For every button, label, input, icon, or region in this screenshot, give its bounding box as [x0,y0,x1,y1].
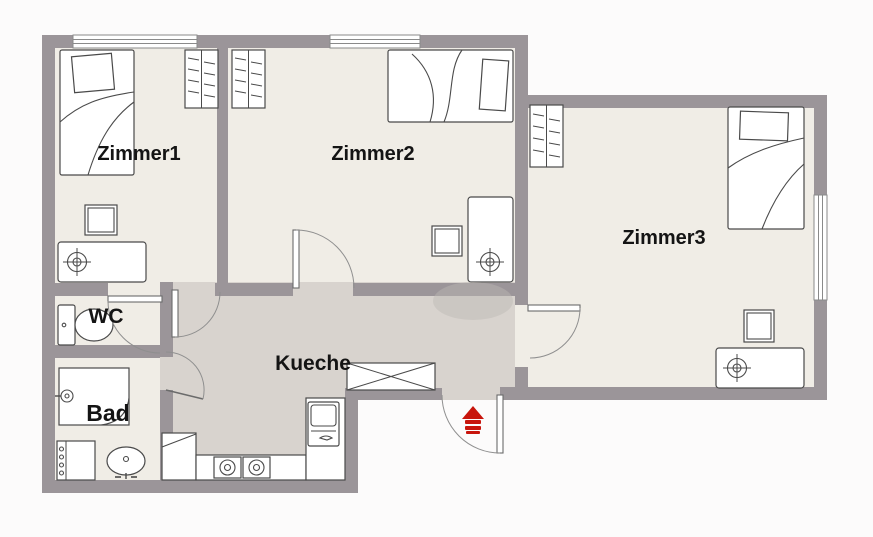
room-label-zimmer2: Zimmer2 [331,143,414,165]
room-label-kueche: Kueche [275,352,351,375]
wall-zimmer3-east-upper [814,95,827,195]
bad-washing-machine [57,441,95,480]
wall-wc-bad-east-upper [160,282,173,357]
zimmer3-wardrobe [530,105,563,167]
wall-west [42,35,55,493]
room-label-zimmer1: Zimmer1 [97,143,180,165]
window-zimmer2 [330,35,420,48]
wall-zimmer2-south-a [215,283,293,296]
zimmer3-bed [728,107,804,229]
wall-south-west-block [42,480,358,493]
zimmer1-wardrobe [185,50,218,108]
zimmer3-stool [744,310,774,342]
window-zimmer1 [73,35,197,48]
zimmer2-desk [468,197,513,282]
wall-zimmer1-south-a [42,283,108,296]
zimmer1-nightstand [85,205,117,235]
zimmer2-bed [388,50,513,122]
wall-zimmer2-east-upper [515,35,528,305]
zimmer3-desk [716,348,804,388]
kueche-table [347,363,435,390]
room-label-wc: WC [89,305,124,328]
watermark-blob [433,282,513,320]
zimmer1-desk [58,242,146,282]
window-zimmer3 [814,195,827,300]
kueche-counter-west [162,433,196,480]
zimmer2-wardrobe [232,50,265,108]
wall-zimmer1-zimmer2 [217,35,228,296]
kueche-sink [308,402,339,446]
room-label-zimmer3: Zimmer3 [622,227,705,249]
room-label-bad: Bad [86,400,129,426]
wall-kitchen-east [345,393,358,493]
floor-plan: Zimmer1 Zimmer2 Zimmer3 WC Bad Kueche [0,0,873,537]
zimmer2-chair [432,226,462,256]
wall-wc-bad-divider [42,345,160,358]
wall-zimmer3-south [500,387,827,400]
floor-plan-canvas: Zimmer1 Zimmer2 Zimmer3 WC Bad Kueche [0,0,873,537]
wall-zimmer3-east-lower [814,300,827,400]
